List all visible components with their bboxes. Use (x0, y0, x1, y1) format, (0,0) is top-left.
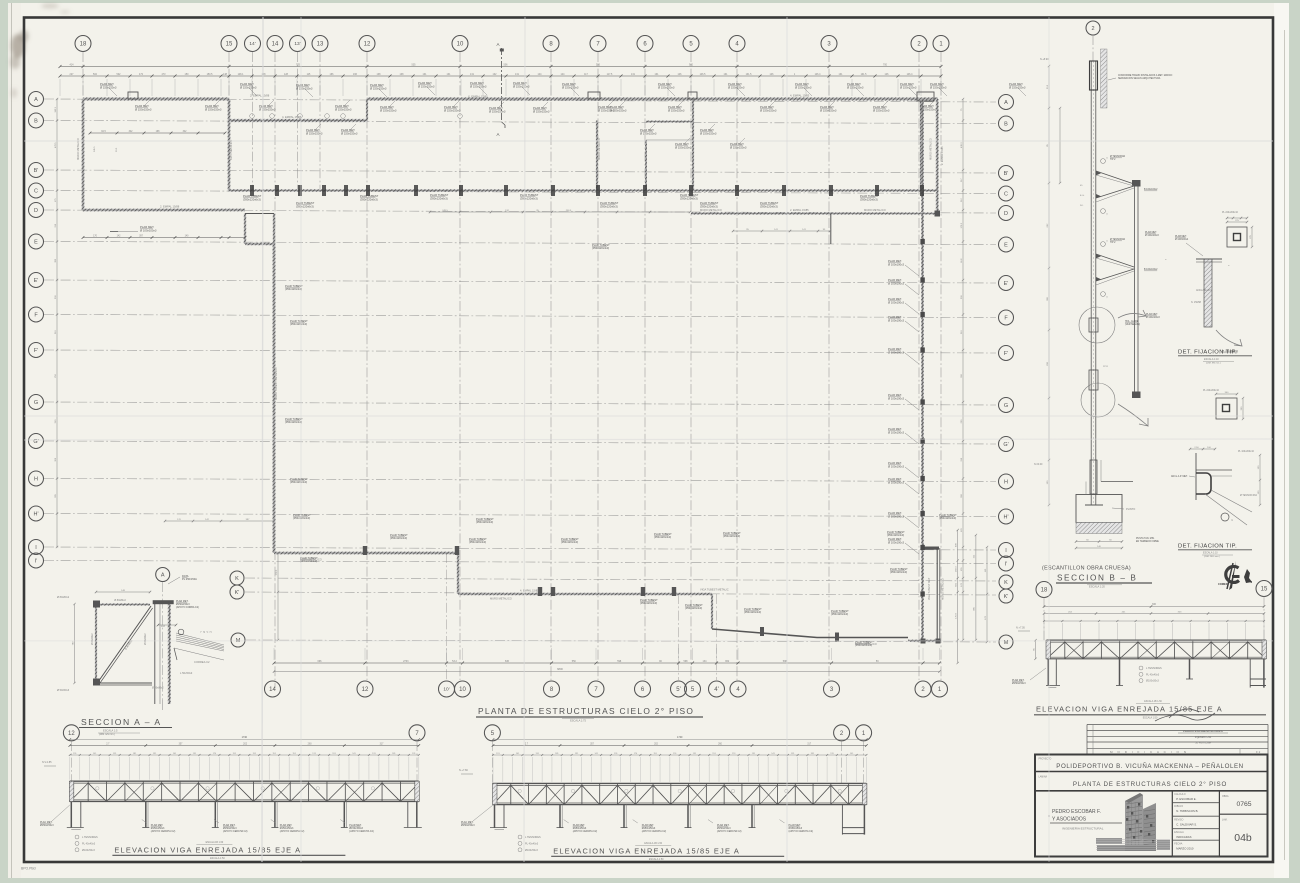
svg-text:249.5: 249.5 (442, 210, 448, 212)
svg-text:PL 100x200x10: PL 100x200x10 (1238, 451, 1255, 453)
svg-text:(APOYO CERCHA C2): (APOYO CERCHA C2) (642, 830, 667, 833)
svg-text:(350x120x4x3): (350x120x4x3) (744, 610, 761, 614)
svg-text:POLIDEPORTIVO B. VICUÑA MAC: POLIDEPORTIVO B. VICUÑA MACKENNA – PEÑAL… (1056, 763, 1243, 770)
svg-text:PL 40x40x3: PL 40x40x3 (1146, 673, 1160, 676)
svg-text:ESCALA 1:10: ESCALA 1:10 (1204, 358, 1219, 361)
svg-text:(APOYO CERCHA C2): (APOYO CERCHA C2) (349, 830, 374, 833)
svg-text:15: 15 (226, 42, 233, 48)
svg-text:Ø 100x100x3: Ø 100x100x3 (888, 464, 904, 468)
svg-text:TIP 2: TIP 2 (1110, 159, 1116, 161)
svg-text:14': 14' (249, 41, 255, 47)
svg-text:(APOYO CERCHA C2): (APOYO CERCHA C2) (573, 830, 598, 833)
svg-text:(350x120x4x3): (350x120x4x3) (285, 287, 302, 291)
svg-text:725: 725 (296, 63, 301, 66)
svg-text:E': E' (1004, 281, 1009, 287)
svg-text:(APOYO CERCHA C2): (APOYO CERCHA C2) (151, 830, 176, 833)
svg-text:INGENIERIA ESTRUCTURAL: INGENIERIA ESTRUCTURAL (1062, 827, 1104, 831)
svg-text:(VER SEGUN): (VER SEGUN) (1125, 324, 1140, 326)
svg-text:14: 14 (272, 42, 279, 48)
svg-text:G': G' (1003, 442, 1008, 448)
svg-text:Ø 150x150x3: Ø 150x150x3 (1009, 85, 1026, 89)
svg-text:Ø 150x150x3: Ø 150x150x3 (205, 107, 222, 111)
svg-text:∨: ∨ (1231, 518, 1233, 522)
svg-text:Ø 100x100x3: Ø 100x100x3 (888, 430, 904, 434)
svg-text:PEDRO ESCOBAR F.: PEDRO ESCOBAR F. (1052, 809, 1101, 815)
svg-text:D: D (1004, 211, 1008, 217)
svg-text:2. EMPAL 15/88: 2. EMPAL 15/88 (160, 205, 180, 209)
svg-text:MURO METALICO: MURO METALICO (700, 208, 722, 212)
svg-text:TIP 2: TIP 2 (1110, 242, 1116, 244)
svg-text:(350x120x4x3): (350x120x4x3) (469, 540, 486, 544)
svg-text:B: B (34, 118, 38, 124)
svg-text:H': H' (1003, 514, 1008, 520)
svg-text:I': I' (1005, 561, 1008, 567)
svg-text:Ø 150x150x3: Ø 150x150x3 (640, 131, 657, 135)
svg-text:PLAB MET.: PLAB MET. (1175, 235, 1187, 238)
svg-text:(DIM. DEL mm.): (DIM. DEL mm.) (1204, 556, 1220, 558)
svg-text:Ø 100x100x3: Ø 100x100x3 (1145, 235, 1159, 237)
svg-text:2. EMPAL 15/85: 2. EMPAL 15/85 (790, 208, 809, 212)
svg-text:117.5: 117.5 (607, 74, 613, 76)
svg-text:4': 4' (714, 687, 718, 693)
svg-text:D: D (34, 208, 38, 214)
svg-text:N. 150/98: N. 150/98 (1191, 302, 1202, 304)
svg-text:A: A (496, 132, 499, 137)
svg-text:Ø TENSORAN: Ø TENSORAN (1110, 155, 1125, 158)
svg-text:COMEX: COMEX (1218, 582, 1228, 586)
svg-text:ELEVACION VIGA ENREJADA 15/: ELEVACION VIGA ENREJADA 15/85 EJE A (114, 846, 301, 855)
svg-text:04b: 04b (1234, 832, 1252, 844)
svg-text:4. EMPAL 15/85: 4. EMPAL 15/85 (520, 589, 539, 593)
svg-text:12: 12 (68, 731, 75, 737)
svg-text:13: 13 (317, 42, 324, 48)
svg-text:I': I' (35, 558, 38, 564)
svg-text:ⁱ⅃: ⁱ⅃ (1250, 579, 1253, 584)
svg-text:M O D I F I C A C I: M O D I F I C A C I O N (1110, 750, 1188, 754)
svg-text:(390x120x6x3): (390x120x6x3) (243, 197, 261, 201)
svg-text:N.+8.90: N.+8.90 (1040, 58, 1049, 61)
svg-text:53.2: 53.2 (452, 660, 457, 663)
svg-text:LAM.: LAM. (1222, 819, 1228, 822)
svg-text:Ø 150x150x3: Ø 150x150x3 (240, 85, 257, 89)
svg-text:150.5: 150.5 (207, 74, 214, 76)
svg-text:Ø 150x150x3: Ø 150x150x3 (920, 107, 937, 111)
svg-text:(390x120x6x3): (390x120x6x3) (860, 197, 878, 201)
svg-text:PL 40x40x3: PL 40x40x3 (82, 842, 96, 845)
svg-text:Ø 80x80x2: Ø 80x80x2 (114, 599, 126, 602)
svg-text:ESCALA 1:50: ESCALA 1:50 (1143, 717, 1158, 720)
svg-text:G: G (34, 400, 38, 406)
svg-text:Ø 100x100x3: Ø 100x100x3 (888, 281, 904, 285)
svg-text:(APOYO CERCHA C2): (APOYO CERCHA C2) (223, 830, 248, 833)
svg-text:SECCION B – B: SECCION B – B (1057, 574, 1137, 583)
svg-text:MURO TUBEST METALICO: MURO TUBEST METALICO (274, 367, 278, 400)
svg-text:MURO METALICO: MURO METALICO (855, 642, 877, 646)
svg-text:INDICADAS: INDICADAS (1176, 835, 1191, 839)
svg-text:(ESCANTILLON OBRA CRUESA): (ESCANTILLON OBRA CRUESA) (1042, 566, 1131, 572)
svg-text:18: 18 (80, 42, 87, 48)
svg-text:146.4: 146.4 (907, 74, 914, 76)
svg-text:Ø TENSORAN: Ø TENSORAN (1110, 238, 1125, 241)
svg-text:Ø 100x100x3: Ø 100x100x3 (888, 480, 904, 484)
svg-text:10': 10' (443, 687, 449, 693)
svg-text:H: H (34, 476, 38, 482)
svg-text:MURO METALICO: MURO METALICO (864, 208, 886, 212)
svg-text:2. EMPAL 15/88: 2. EMPAL 15/88 (250, 94, 270, 98)
svg-text:Ø 150x150x3: Ø 150x150x3 (135, 107, 152, 111)
svg-text:Ø 150x150x3: Ø 150x150x3 (341, 131, 358, 135)
svg-text:PLANTA DE ESTRUCTURAS CIELO: PLANTA DE ESTRUCTURAS CIELO 2° PISO (478, 706, 694, 716)
svg-text:4. EMPAL 15/88: 4. EMPAL 15/88 (282, 115, 302, 119)
svg-text:L 50x50x3: L 50x50x3 (180, 671, 193, 675)
svg-text:283.3: 283.3 (956, 566, 958, 572)
svg-text:A: A (161, 572, 165, 578)
svg-text:A: A (496, 42, 499, 47)
svg-text:Ø 150x150x3: Ø 150x150x3 (700, 131, 717, 135)
svg-text:(350x120x4x3): (350x120x4x3) (290, 480, 307, 484)
svg-text:(390x120x6x3): (390x120x6x3) (680, 196, 698, 200)
svg-text:PL 220x200x10: PL 220x200x10 (1222, 212, 1239, 214)
svg-text:Ingeniero Civil: Ingeniero Civil (1195, 735, 1212, 739)
svg-text:10: 10 (457, 42, 464, 48)
svg-text:4. EMPAL 15/85: 4. EMPAL 15/85 (790, 94, 810, 98)
svg-text:(350x120x4x3): (350x120x4x3) (561, 540, 578, 544)
svg-text:ESCALA 1B 1-50: ESCALA 1B 1-50 (1144, 700, 1162, 703)
svg-text:696: 696 (318, 660, 323, 663)
svg-text:X. EMPAL 15/85: X. EMPAL 15/85 (468, 95, 488, 99)
svg-text:Ø 150x150x3: Ø 150x150x3 (370, 86, 387, 90)
svg-text:CORREA C2: CORREA C2 (194, 660, 210, 664)
svg-text:C. SALDIVAR S.: C. SALDIVAR S. (1176, 823, 1197, 827)
svg-text:L TENSORES: L TENSORES (525, 836, 541, 839)
svg-text:438.3: 438.3 (961, 142, 963, 148)
svg-text:(390x120x6x3): (390x120x6x3) (430, 196, 448, 200)
svg-text:148.1: 148.1 (238, 74, 245, 76)
svg-text:253.5: 253.5 (566, 210, 572, 212)
svg-text:(350x120x4x3): (350x120x4x3) (390, 536, 407, 540)
svg-text:Ø 150x150x3: Ø 150x150x3 (795, 85, 812, 89)
svg-text:CALCULO: CALCULO (1174, 793, 1185, 796)
svg-text:EN TERRENO FIRME: EN TERRENO FIRME (1136, 541, 1159, 543)
svg-text:(APOYO CORBA C2): (APOYO CORBA C2) (176, 606, 199, 609)
svg-text:(350x120x4x3): (350x120x4x3) (654, 535, 671, 539)
svg-text:Ø 80x80x2: Ø 80x80x2 (91, 633, 94, 645)
svg-text:(350x120x4x3): (350x120x4x3) (831, 612, 848, 616)
svg-text:Ø 150x150x3: Ø 150x150x3 (730, 145, 747, 149)
svg-text:Ø 100x100x3: Ø 100x100x3 (888, 396, 904, 400)
svg-text:DIBUJO: DIBUJO (1174, 805, 1183, 808)
svg-text:E: E (1004, 242, 1008, 248)
svg-text:PLAR MET.: PLAR MET. (1145, 231, 1157, 234)
svg-text:K': K' (235, 590, 240, 596)
svg-text:PLINTO: PLINTO (1126, 507, 1135, 511)
svg-text:Ø 150x150x3: Ø 150x150x3 (562, 85, 579, 89)
svg-text:ESCALA 1B 1-50: ESCALA 1B 1-50 (644, 842, 662, 845)
svg-text:PL 40x40x3: PL 40x40x3 (525, 842, 539, 845)
svg-text:Y ASOCIADOS: Y ASOCIADOS (1052, 817, 1087, 823)
svg-text:Ø 150x150x3: Ø 150x150x3 (760, 108, 777, 112)
svg-text:550: 550 (572, 660, 577, 663)
svg-text:(390x120x6x3): (390x120x6x3) (760, 204, 778, 208)
svg-text:2P11: 2P11 (1103, 366, 1109, 368)
svg-text:K: K (235, 576, 239, 582)
svg-text:N.+7.05: N.+7.05 (1016, 627, 1025, 630)
svg-text:Ø150x150x3: Ø150x150x3 (1012, 682, 1026, 685)
svg-text:556: 556 (596, 63, 601, 66)
svg-text:K': K' (1004, 594, 1009, 600)
svg-text:Ø 150x150x3: Ø 150x150x3 (675, 145, 692, 149)
svg-text:414: 414 (70, 63, 75, 66)
svg-text:Ø100x50x3: Ø100x50x3 (82, 849, 95, 852)
svg-text:(350x120x4x3): (350x120x4x3) (640, 601, 657, 605)
svg-text:MURO METALICO: MURO METALICO (490, 597, 512, 601)
svg-text:ANCLAJE Ø19: ANCLAJE Ø19 (1196, 289, 1213, 292)
svg-text:0765: 0765 (1236, 801, 1251, 808)
svg-text:2: 2 (1091, 26, 1094, 32)
svg-text:Ø 150x150x3: Ø 150x150x3 (259, 107, 276, 111)
svg-text:Ø 150x150x3: Ø 150x150x3 (100, 85, 117, 89)
svg-text:Ø 80x80x2: Ø 80x80x2 (57, 596, 70, 599)
svg-text:ESCALA 1B 1-50: ESCALA 1B 1-50 (206, 841, 224, 844)
svg-text:5': 5' (676, 687, 680, 693)
svg-text:Ø 50x50x3: Ø 50x50x3 (57, 689, 70, 692)
svg-text:1740: 1740 (677, 736, 683, 739)
svg-text:Ø 150x150x3: Ø 150x150x3 (873, 108, 890, 112)
svg-text:DET. FIJACION TIP.: DET. FIJACION TIP. (1178, 350, 1237, 356)
svg-text:MURO METALICO: MURO METALICO (941, 578, 945, 600)
svg-text:478.5: 478.5 (55, 142, 57, 148)
svg-text:12: 12 (362, 687, 369, 693)
svg-text:(APOYO CERCHA C2): (APOYO CERCHA C2) (717, 830, 742, 833)
svg-text:VIGA TUBEST METALIC: VIGA TUBEST METALIC (700, 588, 729, 592)
svg-text:N.+7.66: N.+7.66 (459, 769, 468, 772)
svg-text:2. EMPAL 15/85: 2. EMPAL 15/85 (940, 146, 944, 165)
svg-text:G: G (1004, 403, 1008, 409)
svg-text:Ø 100x100x3: Ø 100x100x3 (888, 300, 904, 304)
svg-text:598: 598 (684, 660, 689, 663)
svg-text:SEPARACION SEGUN ARQUITECTURA: SEPARACION SEGUN ARQUITECTURA (1118, 77, 1161, 80)
svg-text:Ø 150x150x3: Ø 150x150x3 (296, 86, 313, 90)
svg-text:St. RUT/Chile: St. RUT/Chile (1195, 741, 1211, 745)
svg-text:Ø 150x150x3: Ø 150x150x3 (335, 107, 352, 111)
svg-text:12: 12 (364, 42, 371, 48)
svg-text:Ø 100x100x3: Ø 100x100x3 (888, 262, 904, 266)
svg-text:B': B' (34, 168, 39, 174)
svg-text:C: C (34, 188, 38, 194)
svg-text:1740: 1740 (242, 736, 248, 739)
svg-text:N.±0.00: N.±0.00 (1034, 463, 1043, 466)
svg-text:VIGA TUBEST MET: VIGA TUBEST MET (928, 577, 931, 600)
svg-text:ELEVACION VIGA ENREJADA 15/: ELEVACION VIGA ENREJADA 15/85 EJE A (1036, 705, 1223, 714)
svg-text:ESCALA 1:50: ESCALA 1:50 (210, 857, 225, 860)
svg-text:(350x120x4x3): (350x120x4x3) (890, 570, 907, 574)
svg-text:PROYECTO: PROYECTO (1039, 759, 1052, 761)
svg-text:598: 598 (617, 660, 622, 663)
svg-text:Ø 150x150x3: Ø 150x150x3 (930, 85, 947, 89)
svg-text:131.5: 131.5 (746, 74, 753, 76)
svg-text:131.5: 131.5 (861, 74, 868, 76)
svg-text:F': F' (34, 348, 38, 354)
svg-text:(DIM. EN mm.): (DIM. EN mm.) (99, 733, 115, 736)
svg-text:ESCALA 1:50: ESCALA 1:50 (649, 858, 664, 861)
svg-text:ELEVACION VIGA ENREJADA 15/: ELEVACION VIGA ENREJADA 15/85 EJE A (553, 847, 740, 856)
svg-text:(350x120x4x3): (350x120x4x3) (290, 322, 307, 326)
svg-text:⌐: ⌐ (1228, 263, 1230, 267)
svg-text:PL 250/150A: PL 250/150A (182, 577, 197, 581)
svg-text:Ø 150x150x3: Ø 150x150x3 (513, 84, 530, 88)
svg-text:OBRA: OBRA (1222, 795, 1229, 798)
svg-text:506: 506 (504, 63, 509, 66)
svg-text:FECHA: FECHA (1174, 842, 1183, 845)
svg-text:ESCALA 1:75: ESCALA 1:75 (570, 719, 586, 723)
svg-text:N.I.: N.I. (1080, 205, 1084, 207)
svg-text:14: 14 (269, 687, 276, 693)
svg-text:278.5: 278.5 (276, 569, 278, 575)
svg-text:Ø 100x100x3: Ø 100x100x3 (888, 318, 904, 322)
svg-text:PLAR MET.: PLAR MET. (1146, 313, 1158, 316)
svg-text:A: A (34, 97, 38, 103)
svg-text:K: K (1004, 580, 1008, 586)
svg-text:REVISO: REVISO (1174, 818, 1183, 821)
svg-text:Ø 150x150x3: Ø 150x150x3 (847, 85, 864, 89)
svg-text:⌐ ∨ < ∾: ⌐ ∨ < ∾ (200, 630, 212, 634)
svg-text:Ø 150x150x3: Ø 150x150x3 (380, 108, 397, 112)
svg-text:DET. FIJACION TIP.: DET. FIJACION TIP. (1178, 544, 1237, 550)
svg-text:(350x120x4x3): (350x120x4x3) (887, 533, 904, 537)
svg-text:L TENSORES: L TENSORES (1146, 667, 1162, 670)
svg-text:Ø 150x150x3: Ø 150x150x3 (533, 109, 550, 113)
svg-text:Ø 100x100x3: Ø 100x100x3 (888, 350, 904, 354)
svg-text:Ø 150x150x3: Ø 150x150x3 (658, 85, 675, 89)
svg-text:10: 10 (459, 687, 466, 693)
svg-text:Ø 100x100x3: Ø 100x100x3 (888, 514, 904, 518)
svg-text:E.G.: E.G. (1080, 195, 1085, 197)
svg-text:Ø 150x150x3: Ø 150x150x3 (418, 84, 435, 88)
svg-text:862: 862 (725, 660, 730, 663)
svg-text:700: 700 (883, 63, 888, 66)
svg-text:Ø 150x150x3: Ø 150x150x3 (306, 131, 323, 135)
svg-text:B': B' (1004, 171, 1009, 177)
svg-text:ANCL.A.P. MET.: ANCL.A.P. MET. (1171, 475, 1188, 478)
svg-text:Ø 100/100x4: Ø 100/100x4 (1175, 239, 1189, 241)
svg-text:(350x120x4x3): (350x120x4x3) (939, 516, 956, 520)
svg-text:Ø 100x100x3: Ø 100x100x3 (1146, 317, 1160, 319)
svg-text:Ø TENSOR Ø12: Ø TENSOR Ø12 (1240, 495, 1258, 497)
svg-text:Ø100x50x3: Ø100x50x3 (1146, 680, 1159, 683)
svg-text:ESCALA: ESCALA (1174, 831, 1184, 834)
svg-text:Ø 100x100x3: Ø 100x100x3 (888, 540, 904, 544)
svg-text:836: 836 (505, 660, 510, 663)
svg-text:(390x120x6x3): (390x120x6x3) (296, 204, 314, 208)
svg-text:Ø150x150x3: Ø150x150x3 (40, 824, 54, 827)
svg-text:146.4: 146.4 (815, 74, 822, 76)
svg-text:Ø 80x80x2: Ø 80x80x2 (144, 633, 147, 645)
svg-text:PL 220x200x10: PL 220x200x10 (1203, 390, 1220, 392)
svg-text:PUNTA TAN. MIN.: PUNTA TAN. MIN. (1136, 537, 1155, 540)
svg-text:Ø 150x150x3: Ø 150x150x3 (444, 108, 461, 112)
svg-text:Ø 100x100x3: Ø 100x100x3 (140, 228, 157, 232)
svg-text:Ø150x150x3: Ø150x150x3 (461, 824, 475, 827)
svg-text:E': E' (34, 278, 39, 284)
svg-text:18: 18 (1041, 588, 1048, 594)
svg-text:CONFORME TRAMO INSTALADOS A ME: CONFORME TRAMO INSTALADOS A MET. MARCO (1118, 74, 1172, 77)
svg-text:E: E (34, 239, 38, 245)
svg-text:Ø 150x150x3: Ø 150x150x3 (470, 84, 487, 88)
svg-text:Ø 150x150x3: Ø 150x150x3 (728, 85, 745, 89)
svg-text:94.5: 94.5 (101, 131, 106, 133)
svg-text:Ø 80x80x2: Ø 80x80x2 (152, 687, 164, 690)
svg-text:MARZO 2010: MARZO 2010 (1176, 847, 1194, 851)
svg-text:6800: 6800 (557, 667, 563, 671)
svg-text:N.V.2.85: N.V.2.85 (42, 761, 52, 764)
svg-text:(APOYO CERCHA C2): (APOYO CERCHA C2) (789, 830, 814, 833)
svg-text:535: 535 (412, 63, 417, 66)
svg-text:H': H' (33, 511, 38, 517)
svg-text:Ø 150x150x3: Ø 150x150x3 (598, 108, 615, 112)
svg-text:PLANTA DE ESTRUCTURAS CIELO: PLANTA DE ESTRUCTURAS CIELO 2° PISO (1073, 781, 1227, 788)
svg-text:ESCALA 1:10: ESCALA 1:10 (1203, 552, 1218, 555)
svg-text:PEDRO ESCOBAR ELORZA: PEDRO ESCOBAR ELORZA (1183, 729, 1224, 733)
svg-text:N. TRIBISCOS B.: N. TRIBISCOS B. (1176, 809, 1198, 813)
svg-text:Ø 150x150x3: Ø 150x150x3 (820, 108, 837, 112)
svg-text:(390x120x6x3): (390x120x6x3) (600, 204, 618, 208)
svg-text:F': F' (1004, 351, 1008, 357)
svg-text:13': 13' (294, 41, 300, 47)
svg-text:H: H (1004, 479, 1008, 485)
svg-text:C: C (1004, 191, 1008, 197)
svg-text:(350x120x4x3): (350x120x4x3) (476, 520, 493, 524)
svg-text:BPO.PBd: BPO.PBd (21, 867, 36, 871)
svg-text:343.5: 343.5 (55, 106, 57, 112)
svg-text:(390x120x6x3): (390x120x6x3) (360, 197, 378, 201)
svg-text:Ø 150x150x3: Ø 150x150x3 (489, 109, 506, 113)
svg-text:(390x120x6x3): (390x120x6x3) (520, 196, 538, 200)
svg-text:2763: 2763 (403, 660, 409, 663)
svg-text:15: 15 (1261, 587, 1268, 593)
svg-text:ALTO METALICO: ALTO METALICO (229, 140, 233, 160)
svg-text:900: 900 (689, 63, 694, 66)
svg-text:SECCION A – A: SECCION A – A (81, 717, 162, 727)
svg-text:Ø 150x150x3: Ø 150x150x3 (668, 108, 685, 112)
svg-text:P. ESCOBAR E.: P. ESCOBAR E. (1176, 797, 1196, 801)
svg-text:Ø100x50x3: Ø100x50x3 (525, 849, 538, 852)
svg-text:(390x120x6x3): (390x120x6x3) (700, 204, 718, 208)
svg-text:134: 134 (703, 660, 708, 663)
svg-text:MURO METALICO: MURO METALICO (300, 558, 322, 562)
svg-text:(350x120x4x3): (350x120x4x3) (285, 420, 302, 424)
svg-text:F 2: F 2 (1256, 750, 1261, 754)
svg-text:LAMINA: LAMINA (1039, 776, 1048, 779)
svg-text:ESCALA 1:20: ESCALA 1:20 (1089, 585, 1105, 589)
svg-text:(350x120x4x3): (350x120x4x3) (723, 534, 740, 538)
svg-text:146.5: 146.5 (700, 74, 707, 76)
svg-text:A: A (1004, 100, 1008, 106)
svg-text:B: B (1004, 121, 1008, 127)
svg-text:Ø 150x150x3: Ø 150x150x3 (900, 85, 917, 89)
svg-text:(350x120x4x3): (350x120x4x3) (592, 246, 609, 250)
svg-text:345.5: 345.5 (94, 146, 96, 152)
svg-text:⌐: ⌐ (1165, 257, 1167, 261)
svg-text:(350x120x4x3): (350x120x4x3) (685, 606, 702, 610)
svg-text:175.6: 175.6 (961, 222, 963, 228)
svg-text:(DIM. EN mm.): (DIM. EN mm.) (1206, 363, 1221, 365)
svg-text:L TENSORES: L TENSORES (82, 836, 98, 839)
svg-text:ESCALA 1:5: ESCALA 1:5 (103, 729, 118, 733)
svg-text:175.8: 175.8 (956, 612, 958, 618)
